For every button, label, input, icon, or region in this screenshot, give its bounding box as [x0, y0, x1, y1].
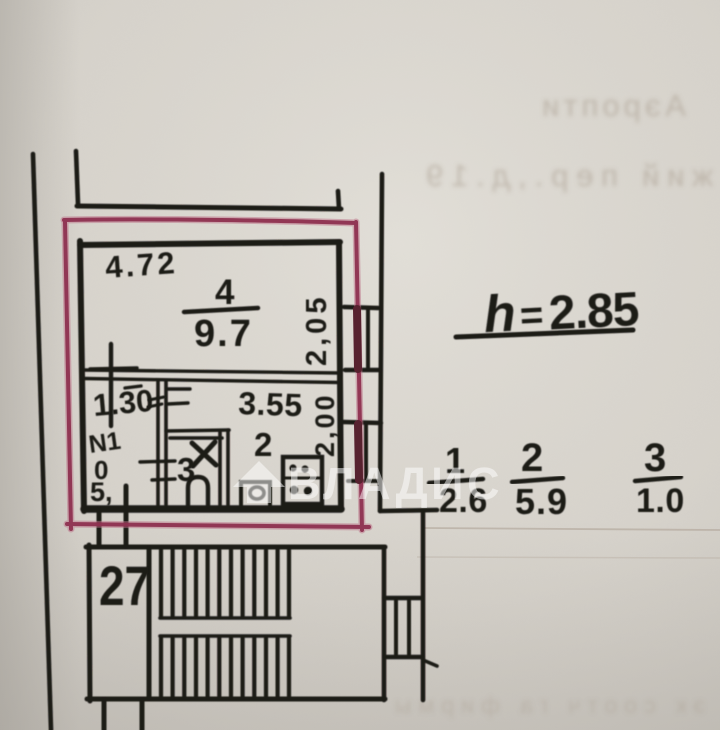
svg-text:9.7: 9.7 [194, 313, 253, 355]
svg-text:5.9: 5.9 [515, 481, 568, 522]
svg-text:2: 2 [254, 426, 272, 463]
svg-text:4: 4 [215, 273, 235, 312]
svg-text:4.72: 4.72 [104, 245, 179, 285]
svg-text:Аэропти: Аэропти [538, 88, 686, 123]
svg-text:жий пер.,д.19: жий пер.,д.19 [423, 158, 713, 193]
svg-text:3.55: 3.55 [238, 385, 303, 423]
svg-text:2,00: 2,00 [310, 392, 340, 457]
svg-text:5,: 5, [90, 477, 113, 507]
svg-text:2,05: 2,05 [301, 294, 333, 366]
svg-text:3: 3 [177, 451, 195, 488]
svg-text:1.0: 1.0 [636, 482, 685, 520]
svg-text:27: 27 [99, 555, 150, 617]
svg-text:1.30: 1.30 [92, 383, 155, 423]
svg-text:2: 2 [521, 436, 543, 480]
svg-text:3: 3 [644, 436, 666, 480]
svg-text:ВЛАДИС: ВЛАДИС [288, 458, 503, 509]
